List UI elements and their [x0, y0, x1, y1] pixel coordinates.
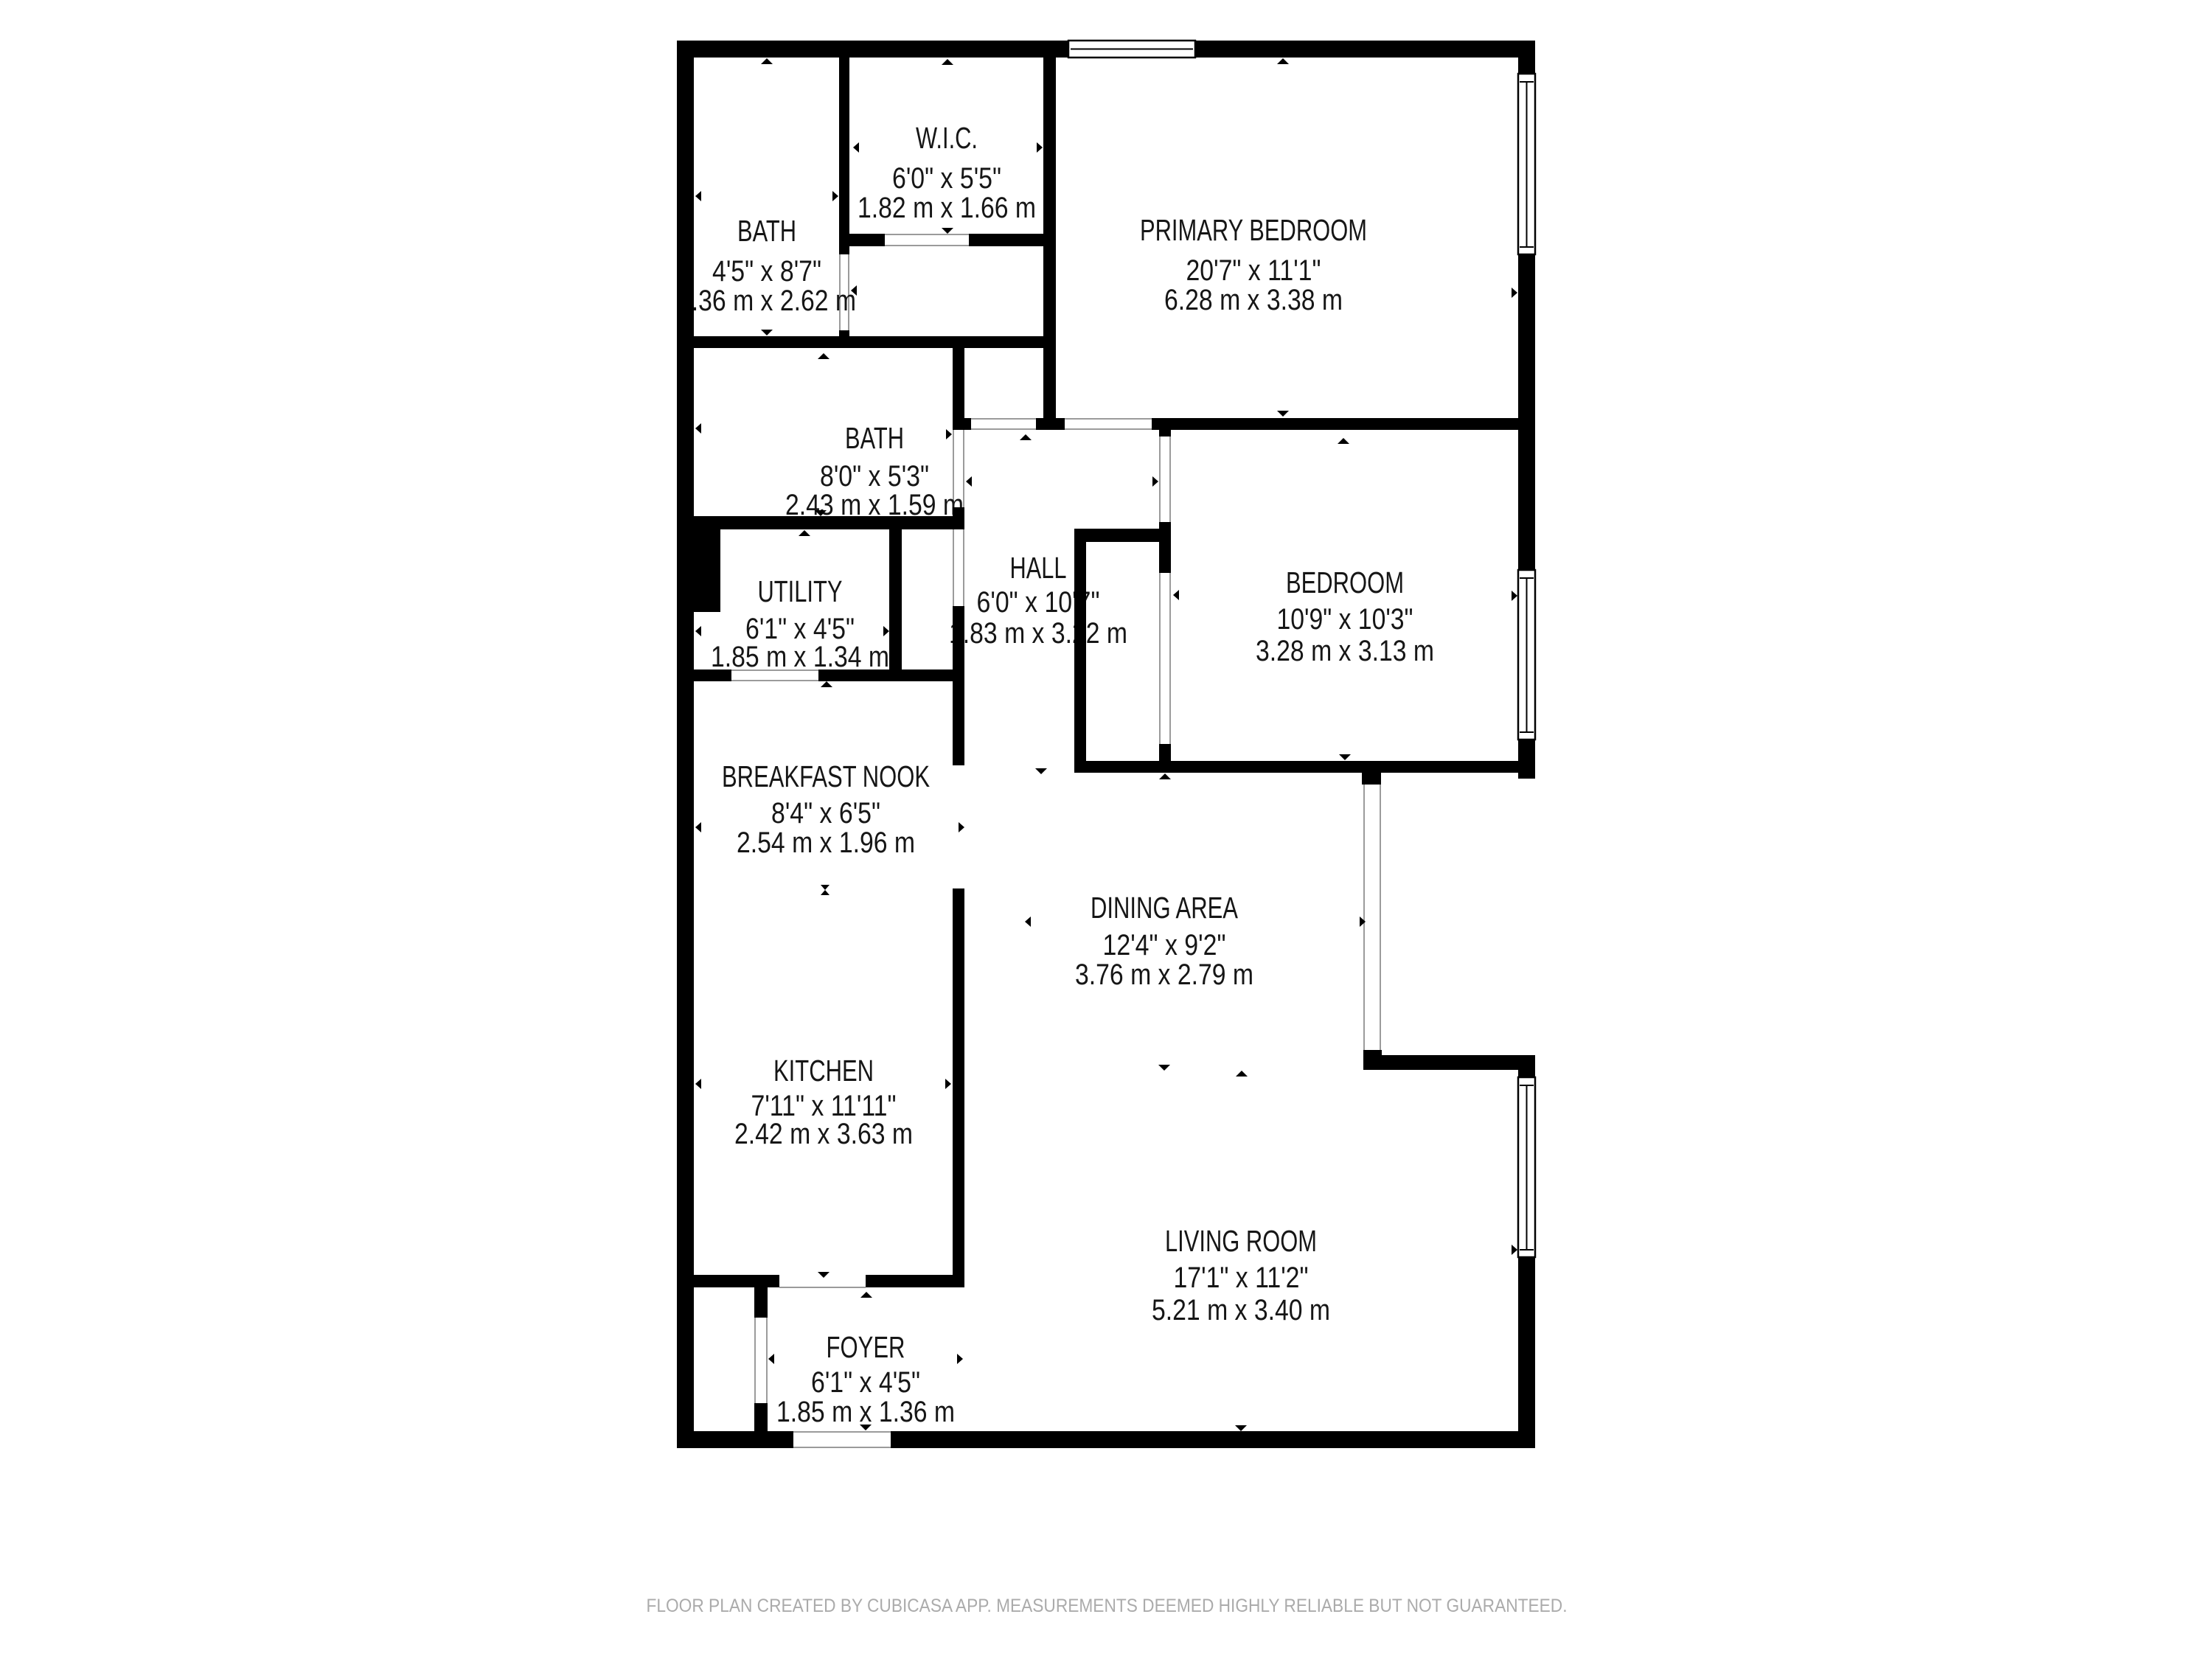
- svg-text:4'5" x 8'7": 4'5" x 8'7": [712, 255, 821, 288]
- svg-text:HALL: HALL: [1010, 551, 1067, 585]
- svg-text:3.76 m x 2.79 m: 3.76 m x 2.79 m: [1075, 959, 1253, 991]
- svg-text:DINING AREA: DINING AREA: [1091, 891, 1238, 925]
- svg-text:1.85 m x 1.36 m: 1.85 m x 1.36 m: [776, 1396, 955, 1428]
- svg-text:12'4" x 9'2": 12'4" x 9'2": [1103, 929, 1226, 961]
- svg-text:10'9" x 10'3": 10'9" x 10'3": [1277, 603, 1413, 636]
- svg-text:1.85 m x 1.34 m: 1.85 m x 1.34 m: [711, 641, 889, 673]
- svg-text:BREAKFAST NOOK: BREAKFAST NOOK: [722, 759, 930, 793]
- svg-text:UTILITY: UTILITY: [758, 574, 843, 608]
- svg-text:LIVING ROOM: LIVING ROOM: [1165, 1224, 1317, 1258]
- svg-text:W.I.C.: W.I.C.: [916, 121, 978, 155]
- svg-text:6.28 m x 3.38 m: 6.28 m x 3.38 m: [1164, 284, 1343, 316]
- svg-text:8'0" x 5'3": 8'0" x 5'3": [820, 460, 929, 493]
- svg-text:FLOOR PLAN CREATED BY CUBICASA: FLOOR PLAN CREATED BY CUBICASA APP. MEAS…: [647, 1596, 1568, 1616]
- svg-text:8'4" x 6'5": 8'4" x 6'5": [771, 797, 880, 829]
- svg-text:BEDROOM: BEDROOM: [1286, 566, 1404, 599]
- svg-text:1.83 m x 3.22 m: 1.83 m x 3.22 m: [949, 617, 1127, 650]
- svg-text:5.21 m x 3.40 m: 5.21 m x 3.40 m: [1152, 1294, 1330, 1326]
- svg-text:3.28 m x 3.13 m: 3.28 m x 3.13 m: [1256, 635, 1434, 667]
- svg-text:2.42 m x 3.63 m: 2.42 m x 3.63 m: [734, 1118, 913, 1150]
- svg-text:6'0" x 5'5": 6'0" x 5'5": [892, 162, 1001, 195]
- svg-text:BATH: BATH: [845, 421, 904, 455]
- svg-text:KITCHEN: KITCHEN: [773, 1054, 874, 1088]
- svg-text:20'7" x 11'1": 20'7" x 11'1": [1186, 254, 1321, 287]
- svg-text:PRIMARY BEDROOM: PRIMARY BEDROOM: [1140, 213, 1367, 247]
- svg-text:BATH: BATH: [737, 214, 796, 248]
- svg-text:1.82 m x 1.66 m: 1.82 m x 1.66 m: [858, 192, 1036, 224]
- svg-text:17'1" x 11'2": 17'1" x 11'2": [1174, 1262, 1309, 1294]
- svg-text:1.36 m x 2.62 m: 1.36 m x 2.62 m: [678, 285, 856, 317]
- svg-text:FOYER: FOYER: [827, 1330, 905, 1364]
- svg-text:6'1" x 4'5": 6'1" x 4'5": [811, 1366, 920, 1399]
- svg-text:2.54 m x 1.96 m: 2.54 m x 1.96 m: [737, 827, 915, 859]
